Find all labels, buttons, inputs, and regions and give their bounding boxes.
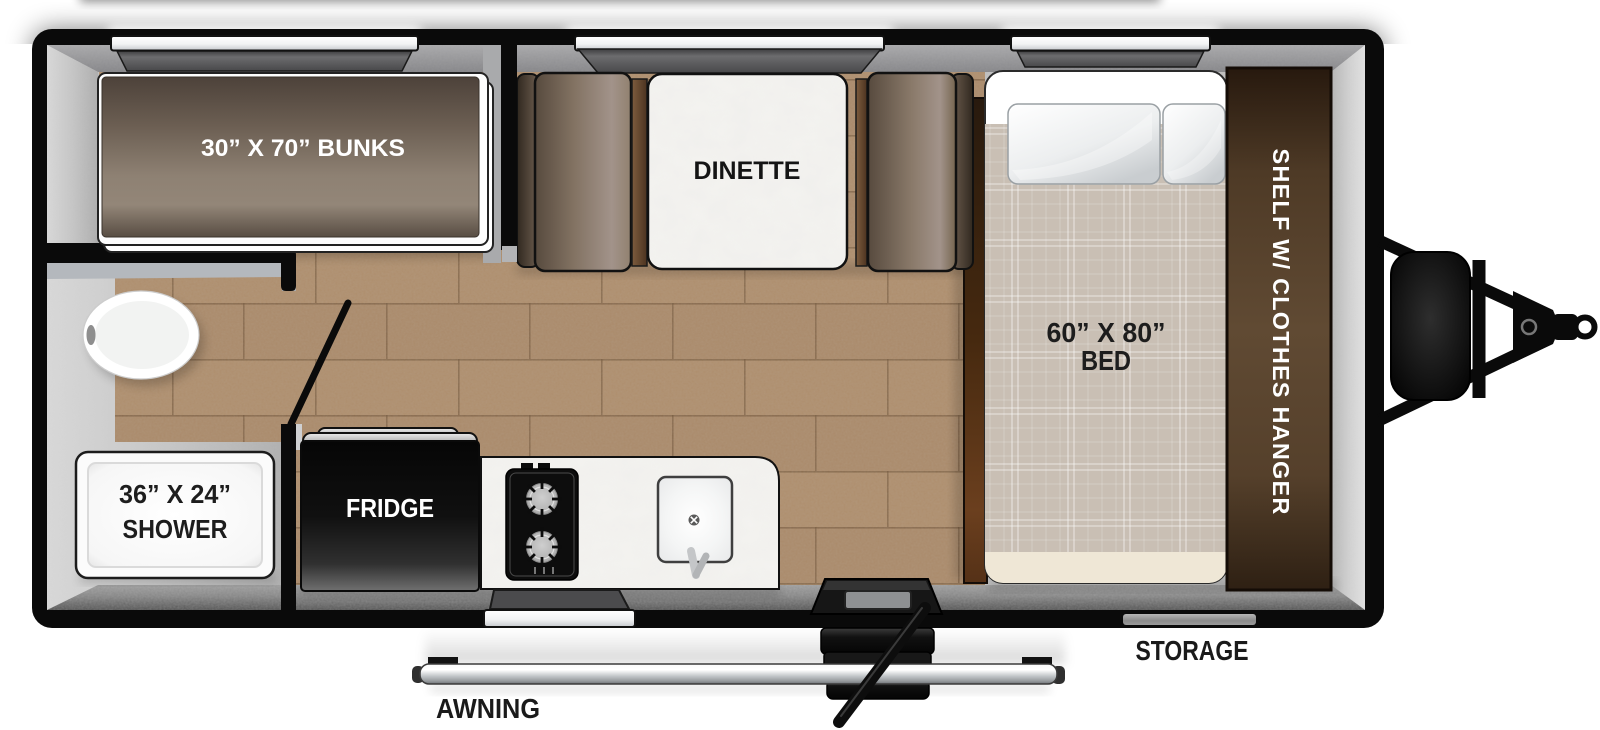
svg-text:SHELF W/ CLOTHES HANGER: SHELF W/ CLOTHES HANGER bbox=[1268, 148, 1294, 515]
svg-text:BED: BED bbox=[1081, 345, 1131, 376]
svg-text:FRIDGE: FRIDGE bbox=[346, 493, 434, 523]
svg-text:DINETTE: DINETTE bbox=[694, 157, 801, 185]
svg-text:SHOWER: SHOWER bbox=[123, 516, 228, 544]
svg-text:STORAGE: STORAGE bbox=[1136, 635, 1249, 666]
svg-text:AWNING: AWNING bbox=[436, 693, 540, 724]
svg-text:30” X 70” BUNKS: 30” X 70” BUNKS bbox=[201, 135, 405, 162]
svg-text:36” X 24”: 36” X 24” bbox=[119, 481, 231, 509]
svg-text:60” X 80”: 60” X 80” bbox=[1047, 317, 1166, 348]
